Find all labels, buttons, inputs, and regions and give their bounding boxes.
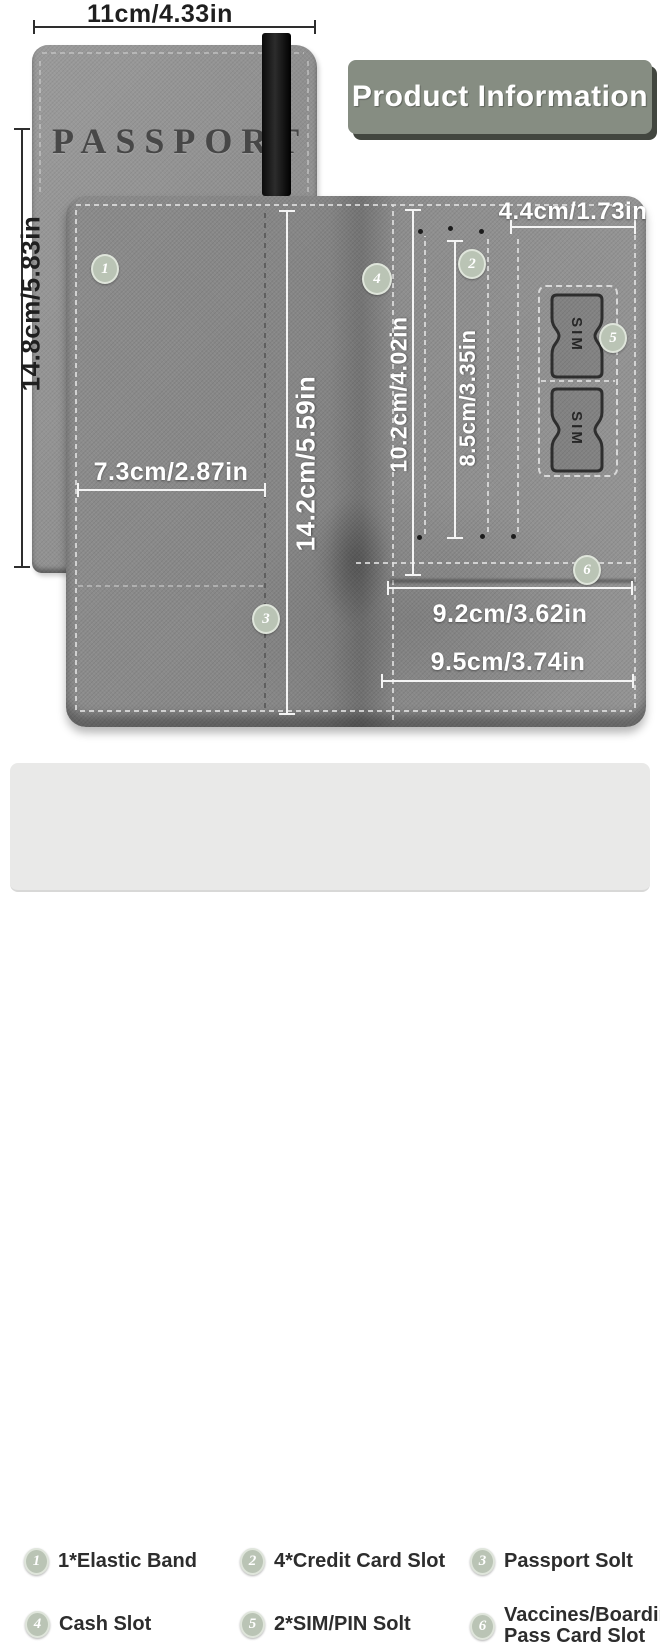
legend-badge-3: 3	[470, 1548, 495, 1575]
legend-label: Vaccines/Boarding Pass Card Slot	[504, 1605, 660, 1647]
stitch-dot	[448, 226, 453, 231]
stitch-dot	[511, 534, 516, 539]
inner-pocket-dimension-line	[387, 587, 633, 589]
legend-badge-1: 1	[24, 1548, 49, 1575]
marker-5-sim-slot: 5	[599, 323, 627, 353]
card-slot-stitch	[487, 236, 489, 532]
wallet-bottom-stitch	[80, 710, 632, 712]
legend-item-pass-card-slot: 6 Vaccines/Boarding Pass Card Slot	[470, 1605, 660, 1647]
legend-item-passport-slot: 3 Passport Solt	[470, 1548, 633, 1575]
cash-slot-dimension-line	[77, 489, 266, 491]
marker-3-passport-slot: 3	[252, 604, 280, 634]
legend-item-credit-card-slot: 2 4*Credit Card Slot	[240, 1548, 445, 1575]
sim-panel-separator	[541, 380, 615, 382]
legend-label: 4*Credit Card Slot	[274, 1551, 445, 1572]
legend-label: 2*SIM/PIN Solt	[274, 1614, 411, 1635]
sim-slot-2: SIM	[549, 386, 605, 472]
sim-panel-width-label: 4.4cm/1.73in	[473, 198, 660, 226]
stitch-dot	[480, 534, 485, 539]
marker-4-cash-slot: 4	[362, 263, 392, 295]
legend-label: 1*Elastic Band	[58, 1551, 197, 1572]
legend-badge-5: 5	[240, 1611, 265, 1638]
legend-badge-6: 6	[470, 1613, 495, 1640]
sim-slot-1: SIM	[549, 292, 605, 378]
marker-1-elastic-band: 1	[91, 254, 119, 284]
cover-height-label: 14.8cm/5.83in	[16, 194, 47, 414]
sim-label: SIM	[534, 401, 620, 457]
cover-width-label: 11cm/4.33in	[60, 0, 260, 29]
page-title: Product Information	[352, 80, 648, 114]
legend-badge-4: 4	[25, 1611, 50, 1638]
product-infographic: 11cm/4.33in 14.8cm/5.83in PASSPORT Produ…	[0, 0, 660, 900]
card-slot-stitch	[424, 236, 426, 534]
legend-item-cash-slot: 4 Cash Slot	[25, 1611, 151, 1638]
passport-slot-dimension-line	[286, 210, 288, 715]
legend-panel: 1 1*Elastic Band 2 4*Credit Card Slot 3 …	[10, 763, 650, 892]
outer-pocket-width-label: 9.5cm/3.74in	[408, 648, 608, 677]
cover-left-stitch	[39, 58, 41, 192]
wallet-fold-shadow	[318, 498, 390, 623]
stitch-dot	[479, 229, 484, 234]
outer-pocket-dimension-line	[381, 680, 634, 682]
legend-item-sim-pin-slot: 5 2*SIM/PIN Solt	[240, 1611, 411, 1638]
cash-pocket-stitch	[78, 585, 264, 587]
card-slot-stitch	[517, 238, 519, 532]
stitch-dot	[418, 229, 423, 234]
legend-badge-2: 2	[240, 1548, 265, 1575]
legend-label: Cash Slot	[59, 1614, 151, 1635]
card-slot-height-label: 10.2cm/4.02in	[386, 295, 413, 495]
marker-2-credit-card-slot: 2	[458, 249, 486, 279]
marker-6-pass-card-slot: 6	[573, 555, 601, 585]
inner-pocket-width-label: 9.2cm/3.62in	[410, 600, 610, 629]
legend-label: Passport Solt	[504, 1551, 633, 1572]
title-banner: Product Information	[348, 60, 652, 134]
card-slot-inner-height-label: 8.5cm/3.35in	[455, 303, 481, 493]
legend-item-elastic-band: 1 1*Elastic Band	[24, 1548, 197, 1575]
sim-panel-dimension-line	[510, 226, 636, 228]
cash-slot-width-label: 7.3cm/2.87in	[71, 458, 271, 487]
passport-slot-height-label: 14.2cm/5.59in	[291, 354, 322, 574]
bottom-pocket-edge	[390, 579, 636, 583]
wallet-right-stitch	[634, 210, 636, 708]
elastic-band	[262, 33, 291, 196]
stitch-dot	[417, 535, 422, 540]
